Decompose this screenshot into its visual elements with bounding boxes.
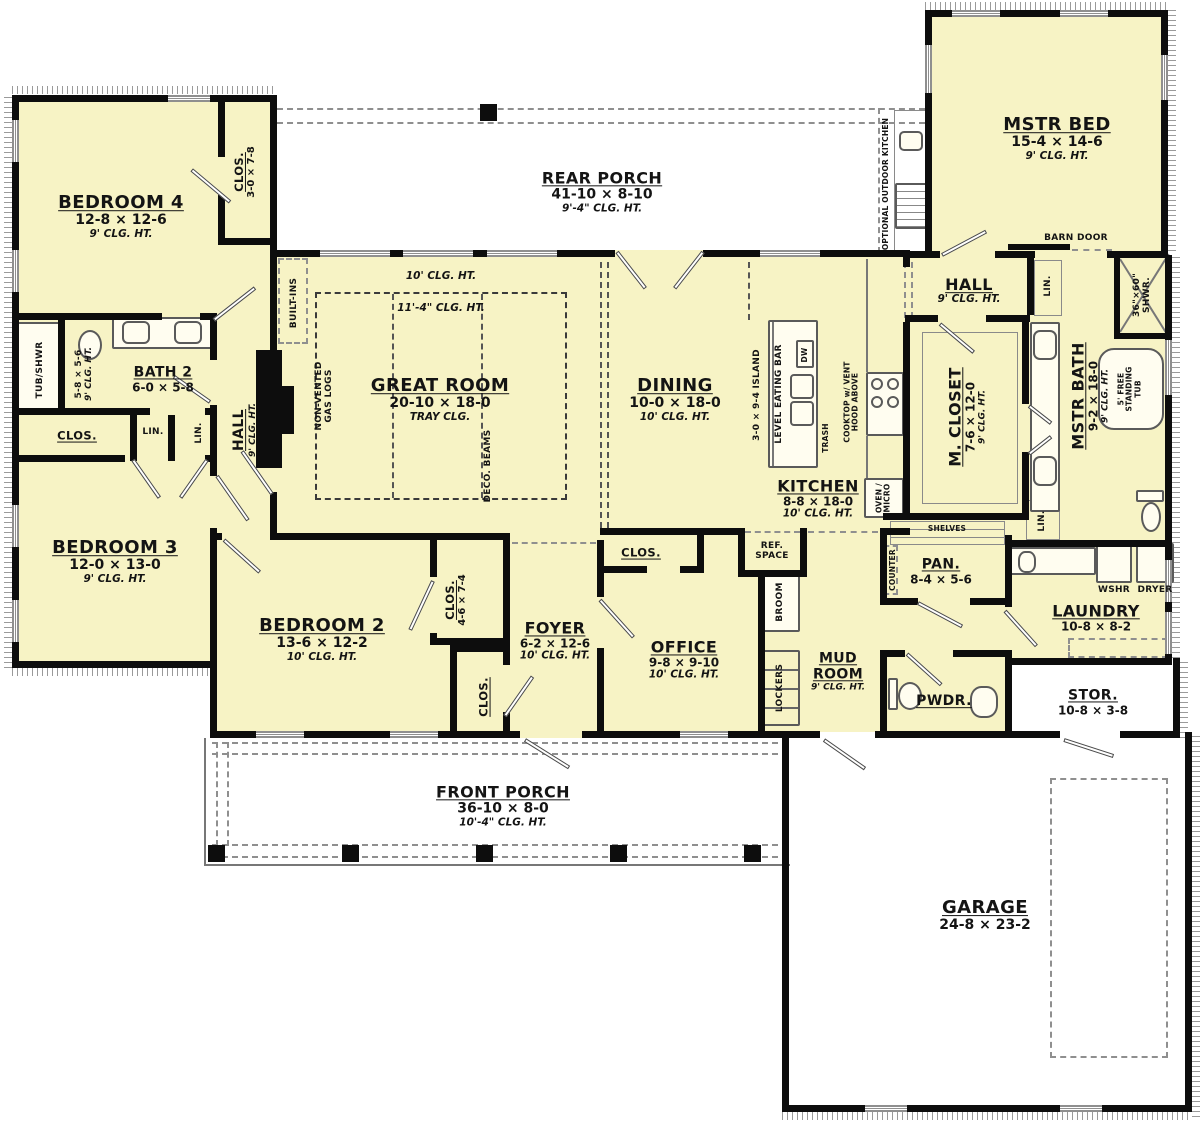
fixture-label: 5' FREE STANDING TUB <box>1117 360 1142 418</box>
porch-post <box>476 845 493 862</box>
room-clg: 10'-4" CLG. HT. <box>436 817 570 829</box>
window <box>865 1105 907 1112</box>
floor-plan: REAR PORCH 41-10 × 8-10 9'-4" CLG. HT. F… <box>0 0 1200 1125</box>
room-title: PAN. <box>910 557 972 573</box>
mstr-bed-label: MSTR BED 15-4 × 14-6 9' CLG. HT. <box>1003 115 1110 163</box>
deco-beams-label: DECO. BEAMS <box>483 430 493 503</box>
room-dims: 5-8 × 5-6 <box>74 347 84 401</box>
room-title: MSTR BED <box>1003 115 1110 135</box>
siding-hatch <box>1192 732 1200 1117</box>
closet-46-label: CLOS. 4-6 × 7-4 <box>444 574 468 625</box>
built-ins-label: BUILT-INS <box>289 278 299 328</box>
sink <box>1033 330 1057 360</box>
fireplace-hearth <box>280 386 294 434</box>
room-clg: 9' CLG. HT. <box>1101 342 1111 450</box>
room-dims: 13-6 × 12-2 <box>259 636 385 652</box>
wall <box>210 661 217 738</box>
bedroom2-label: BEDROOM 2 13-6 × 12-2 10' CLG. HT. <box>259 616 385 664</box>
wall <box>12 547 19 600</box>
window <box>1161 55 1168 100</box>
outdoor-kitchen-label: OPTIONAL OUTDOOR KITCHEN <box>882 118 890 250</box>
wall <box>597 648 604 738</box>
broom-label: BROOM <box>775 582 785 622</box>
room-title: MUD ROOM <box>807 651 869 682</box>
wall <box>450 645 510 652</box>
tub-shwr-label: TUB/SHWR <box>35 342 45 399</box>
room-dims: 4-6 × 7-4 <box>457 574 468 625</box>
room-clg: 9' CLG. HT. <box>58 229 184 241</box>
wall <box>1161 10 1168 55</box>
room-title: CLOS. <box>444 574 457 625</box>
burner-icon <box>887 378 899 390</box>
fixture-label: LEVEL EATING BAR <box>774 344 784 443</box>
window <box>12 600 19 642</box>
ref-space-label: REF. SPACE <box>749 541 795 561</box>
wall <box>473 250 487 257</box>
room-dims: 3-0 × 7-8 <box>246 146 257 197</box>
wall <box>304 731 390 738</box>
wall <box>1120 731 1180 738</box>
fixture-label: NON-VENTED GAS LOGS <box>314 353 334 439</box>
room-clg: 10' CLG. HT. <box>520 651 590 663</box>
room-dims: 7-6 × 12-0 <box>964 367 977 467</box>
room-title: HALL <box>232 403 248 457</box>
wall <box>12 661 217 668</box>
fixture-label: LIN. <box>1043 275 1053 296</box>
room-clg: 9' CLG. HT. <box>1003 151 1110 163</box>
siding-hatch <box>1168 10 1176 251</box>
porch-post <box>208 845 225 862</box>
toilet <box>1141 502 1161 532</box>
powder-label: PWDR. <box>916 694 972 710</box>
fixture-label: OVEN / MICRO <box>876 481 893 515</box>
burner-icon <box>871 378 883 390</box>
room-clg: 10' CLG. HT. <box>777 509 859 521</box>
wall <box>1161 100 1168 251</box>
bedroom4-label: BEDROOM 4 12-8 × 12-6 9' CLG. HT. <box>58 193 184 241</box>
wall <box>210 461 217 476</box>
room-dims: 12-8 × 12-6 <box>58 213 184 229</box>
room-clg: 10' CLG. HT. <box>406 271 476 283</box>
porch-roof-line <box>227 742 229 846</box>
room-clg: 11'-4" CLG. HT. <box>397 303 484 315</box>
siding-hatch <box>925 2 1168 10</box>
wall <box>1008 540 1165 547</box>
fixture-label: DRYER <box>1137 585 1172 595</box>
porch-slab-edge <box>204 864 790 866</box>
island-sink <box>790 374 814 399</box>
window <box>256 731 304 738</box>
siding-hatch <box>12 86 277 94</box>
toilet-tank <box>888 678 898 710</box>
opening-foyer <box>512 542 596 544</box>
wall <box>905 315 938 322</box>
wall <box>995 251 1035 258</box>
wall <box>210 528 217 668</box>
room-title: DINING <box>629 376 721 396</box>
bath2-tub-room-label: 5-8 × 5-6 9' CLG. HT. <box>74 347 94 401</box>
room-title: FRONT PORCH <box>436 783 570 801</box>
window <box>952 10 1000 17</box>
room-clg: 10' CLG. HT. <box>259 652 385 664</box>
room-clg: 9' CLG. HT. <box>52 574 178 586</box>
room-clg: 9' CLG. HT. <box>978 367 988 467</box>
window <box>1165 612 1172 654</box>
room-dims: 8-8 × 18-0 <box>777 495 859 508</box>
room-clg: 9' CLG. HT. <box>807 683 869 693</box>
window <box>1165 560 1172 602</box>
window <box>12 505 19 547</box>
window <box>760 250 820 257</box>
window <box>925 45 932 93</box>
window <box>1060 1105 1102 1112</box>
wall <box>218 195 225 238</box>
great-room-label: GREAT ROOM 20-10 × 18-0 TRAY CLG. <box>371 376 509 424</box>
sink <box>122 321 150 344</box>
wall <box>12 162 19 250</box>
wall <box>270 95 277 257</box>
island-sink <box>790 401 814 426</box>
dishwasher-label: DW <box>801 348 809 363</box>
porch-post <box>744 845 761 862</box>
fixture-label: 36"×60" SHWR. <box>1132 273 1152 317</box>
wall <box>390 250 403 257</box>
wall <box>738 570 807 577</box>
porch-roof-line <box>212 753 788 755</box>
wall <box>12 95 277 102</box>
wall <box>600 528 745 535</box>
sink <box>1033 456 1057 486</box>
room-title: PWDR. <box>916 694 972 710</box>
cooktop-label: COOKTOP w/ VENT HOOD ABOVE <box>844 356 861 448</box>
window <box>320 250 390 257</box>
fixture-label: BROOM <box>775 582 785 622</box>
fixture-label: OPTIONAL OUTDOOR KITCHEN <box>882 118 890 250</box>
porch-roof-line <box>216 742 218 846</box>
window <box>680 731 728 738</box>
fixture-label: BUILT-INS <box>289 278 299 328</box>
window <box>487 250 557 257</box>
wall <box>130 415 137 461</box>
porch-roof-line <box>212 742 788 744</box>
wall <box>12 95 19 120</box>
porch-slab-edge <box>204 738 206 866</box>
room-dims: 6-0 × 5-8 <box>132 381 194 394</box>
room-title: CLOS. <box>233 146 246 197</box>
room-title: BEDROOM 4 <box>58 193 184 213</box>
ceiling-break-line <box>748 262 750 320</box>
room-dims: 9-8 × 9-10 <box>649 656 719 669</box>
porch-beam-line <box>212 844 788 846</box>
wall <box>905 251 940 258</box>
eating-bar-label: LEVEL EATING BAR <box>774 344 784 443</box>
opening-hall <box>911 262 913 318</box>
dryer-label: DRYER <box>1137 585 1172 595</box>
wall <box>270 250 320 257</box>
wall <box>953 650 1012 657</box>
wall <box>903 257 910 267</box>
closet-foyer-label: CLOS. <box>478 677 491 717</box>
room-title: GREAT ROOM <box>371 376 509 396</box>
kitchen-label: KITCHEN 8-8 × 18-0 10' CLG. HT. <box>777 477 859 520</box>
bedroom3-label: BEDROOM 3 12-0 × 13-0 9' CLG. HT. <box>52 538 178 586</box>
hall-left-label: HALL 9' CLG. HT. <box>232 403 258 457</box>
washer-label: WSHR <box>1098 585 1130 595</box>
wall <box>270 533 507 540</box>
wall <box>880 528 910 535</box>
oven-micro-label: OVEN / MICRO <box>876 481 893 515</box>
wall <box>12 292 19 505</box>
laundry-label: LAUNDRY 10-8 × 8-2 <box>1052 602 1140 633</box>
laundry-counter-outline <box>1068 638 1168 658</box>
room-title: HALL <box>938 276 1001 294</box>
room-dims: 20-10 × 18-0 <box>371 396 509 412</box>
wall <box>503 533 510 665</box>
fixture-label: LIN. <box>142 427 163 437</box>
room-clg: 9' CLG. HT. <box>84 347 94 401</box>
linen-label: LIN. <box>194 422 204 443</box>
kitchen-counter-edge <box>866 436 868 480</box>
wall <box>782 732 789 1112</box>
wall <box>1022 452 1029 520</box>
hall-right-label: HALL 9' CLG. HT. <box>938 276 1001 306</box>
wall <box>1102 1105 1192 1112</box>
toilet-tank <box>1136 490 1164 502</box>
closet-bedroom3-label: CLOS. <box>57 430 97 443</box>
porch-post <box>480 104 497 121</box>
wall <box>205 408 217 415</box>
room-dims: 10-8 × 8-2 <box>1052 620 1140 633</box>
wall <box>1114 255 1120 339</box>
wall <box>1114 333 1166 339</box>
washer <box>1096 543 1132 583</box>
storage-label: STOR. 10-8 × 3-8 <box>1058 688 1128 717</box>
linen-label: LIN. <box>1043 275 1053 296</box>
wall <box>875 731 1060 738</box>
wall <box>790 731 820 738</box>
room-title: CLOS. <box>57 430 97 443</box>
gas-logs-label: NON-VENTED GAS LOGS <box>314 353 334 439</box>
shelves-label: SHELVES <box>928 525 966 533</box>
porch-roof-line <box>277 122 925 124</box>
room-title: STOR. <box>1058 688 1128 704</box>
porch-beam-line <box>212 856 788 858</box>
kitchen-counter-edge <box>866 259 868 372</box>
closet-bedroom4-label: CLOS. 3-0 × 7-8 <box>233 146 257 197</box>
great-room-clg10-label: 10' CLG. HT. <box>406 271 476 283</box>
burner-icon <box>871 396 883 408</box>
sink <box>174 321 202 344</box>
room-dims: 24-8 × 23-2 <box>939 918 1031 934</box>
wall <box>1165 255 1172 340</box>
wall <box>1173 658 1180 738</box>
island-label: 3-0 × 9-4 ISLAND <box>752 349 762 441</box>
wall <box>1165 602 1172 612</box>
wall <box>58 320 65 412</box>
wall <box>430 533 437 577</box>
wall <box>880 535 887 605</box>
room-dims: 41-10 × 8-10 <box>542 187 662 203</box>
siding-hatch <box>1180 658 1188 738</box>
wall <box>880 598 918 605</box>
room-title: FOYER <box>520 619 590 637</box>
wall <box>218 102 225 157</box>
ceiling-break-line <box>607 262 609 528</box>
wall <box>217 731 256 738</box>
room-dims: 9-2 × 18-0 <box>1087 342 1100 450</box>
fixture-label: COOKTOP w/ VENT HOOD ABOVE <box>844 356 861 448</box>
fixture-label: DECO. BEAMS <box>483 430 493 503</box>
linen-label: LIN. <box>142 427 163 437</box>
wall <box>430 638 510 645</box>
wall <box>820 250 910 257</box>
room-dims: 36-10 × 8-0 <box>436 801 570 817</box>
outdoor-sink <box>899 131 923 151</box>
room-title: REAR PORCH <box>542 169 662 187</box>
room-title: BATH 2 <box>132 365 194 381</box>
wall <box>1022 322 1029 404</box>
wall <box>703 250 760 257</box>
wall <box>925 93 932 258</box>
window <box>390 731 438 738</box>
fixture-label: WSHR <box>1098 585 1130 595</box>
room-clg: 9'-4" CLG. HT. <box>542 203 662 215</box>
room-title: BEDROOM 3 <box>52 538 178 558</box>
fixture-label: DW <box>801 348 809 363</box>
outdoor-grill <box>895 183 927 229</box>
wall <box>1165 395 1172 560</box>
window <box>12 250 19 292</box>
fixture-label: LIN. <box>1037 510 1047 531</box>
wall <box>903 322 910 520</box>
room-title: CLOS. <box>621 547 661 560</box>
wall <box>1005 658 1172 665</box>
room-title: OFFICE <box>649 638 719 656</box>
siding-hatch <box>4 95 12 668</box>
wall <box>557 250 615 257</box>
fixture-label: REF. SPACE <box>749 541 795 561</box>
fixture-label: LIN. <box>194 422 204 443</box>
window <box>1060 10 1108 17</box>
wall <box>218 238 277 245</box>
wall <box>12 408 150 415</box>
linen-label: LIN. <box>1037 510 1047 531</box>
rear-porch-label: REAR PORCH 41-10 × 8-10 9'-4" CLG. HT. <box>542 169 662 214</box>
dining-label: DINING 10-0 × 18-0 10' CLG. HT. <box>629 376 721 424</box>
wall <box>782 1105 865 1112</box>
room-dims: 12-0 × 13-0 <box>52 558 178 574</box>
room-clg: 10' CLG. HT. <box>629 412 721 424</box>
fixture-label: COUNTER <box>889 549 897 591</box>
foyer-label: FOYER 6-2 × 12-6 10' CLG. HT. <box>520 619 590 662</box>
window <box>403 250 473 257</box>
window <box>168 95 210 102</box>
room-title: MSTR BATH <box>1069 342 1087 450</box>
room-dims: 10-8 × 3-8 <box>1058 704 1128 717</box>
burner-icon <box>887 396 899 408</box>
room-title: BEDROOM 2 <box>259 616 385 636</box>
siding-hatch <box>1172 255 1180 658</box>
barn-door-slab <box>1008 244 1070 250</box>
window <box>1165 340 1172 395</box>
room-dims: 10-0 × 18-0 <box>629 396 721 412</box>
fixture-label: 3-0 × 9-4 ISLAND <box>752 349 762 441</box>
wall <box>1108 10 1168 17</box>
room-dims: 8-4 × 5-6 <box>910 573 972 586</box>
wall <box>597 566 647 573</box>
room-title: M. CLOSET <box>946 367 964 467</box>
great-room-clg11-label: 11'-4" CLG. HT. <box>397 303 484 315</box>
room-tray: TRAY CLG. <box>371 412 509 424</box>
mstr-bath-label: MSTR BATH 9-2 × 18-0 9' CLG. HT. <box>1069 342 1110 450</box>
wall <box>925 10 932 45</box>
wall <box>1005 652 1012 738</box>
porch-post <box>610 845 627 862</box>
trash-label: TRASH <box>822 423 830 452</box>
siding-hatch <box>782 1112 1192 1120</box>
wall <box>758 570 765 738</box>
room-dims: 15-4 × 14-6 <box>1003 135 1110 151</box>
wall <box>1185 732 1192 1112</box>
room-title: LAUNDRY <box>1052 602 1140 620</box>
closet-office-label: CLOS. <box>621 547 661 560</box>
porch-post <box>342 845 359 862</box>
front-porch-label: FRONT PORCH 36-10 × 8-0 10'-4" CLG. HT. <box>436 783 570 828</box>
opening-ref <box>745 531 800 533</box>
wall <box>450 645 457 731</box>
wall <box>12 313 162 320</box>
wall <box>986 315 1030 322</box>
bath2-label: BATH 2 6-0 × 5-8 <box>132 365 194 394</box>
wall <box>217 533 222 540</box>
room-dims: 6-2 × 12-6 <box>520 637 590 650</box>
shower-label: 36"×60" SHWR. <box>1132 273 1152 317</box>
room-clg: 10' CLG. HT. <box>649 670 719 682</box>
garage-dashed-area <box>1050 778 1168 1058</box>
room-title: GARAGE <box>939 898 1031 918</box>
siding-hatch <box>12 668 217 676</box>
lockers-label: LOCKERS <box>775 664 785 712</box>
wall <box>883 513 1029 520</box>
room-clg: 9' CLG. HT. <box>938 294 1001 306</box>
garage-label: GARAGE 24-8 × 23-2 <box>939 898 1031 934</box>
opening-hall <box>904 262 906 318</box>
barn-door-label: BARN DOOR <box>1044 233 1108 243</box>
fixture-label: BARN DOOR <box>1044 233 1108 243</box>
wall <box>697 528 704 573</box>
fixture-label: SHELVES <box>928 525 966 533</box>
wall <box>907 1105 1060 1112</box>
wall <box>1000 10 1060 17</box>
pantry-label: PAN. 8-4 × 5-6 <box>910 557 972 586</box>
free-tub-label: 5' FREE STANDING TUB <box>1117 360 1142 418</box>
office-label: OFFICE 9-8 × 9-10 10' CLG. HT. <box>649 638 719 681</box>
room-clg: 9' CLG. HT. <box>248 403 258 457</box>
room-title: CLOS. <box>478 677 491 717</box>
ceiling-break-line <box>600 262 602 528</box>
barn-door-track <box>1072 249 1112 251</box>
wall <box>168 415 175 461</box>
outdoor-kitchen-boundary <box>878 108 880 253</box>
wall <box>880 657 887 731</box>
fireplace <box>256 350 282 468</box>
fixture-label: LOCKERS <box>775 664 785 712</box>
wall <box>12 455 125 462</box>
pedestal-sink <box>970 686 998 718</box>
fixture-label: TUB/SHWR <box>35 342 45 399</box>
wall <box>1027 258 1034 315</box>
porch-roof-line <box>277 108 925 110</box>
